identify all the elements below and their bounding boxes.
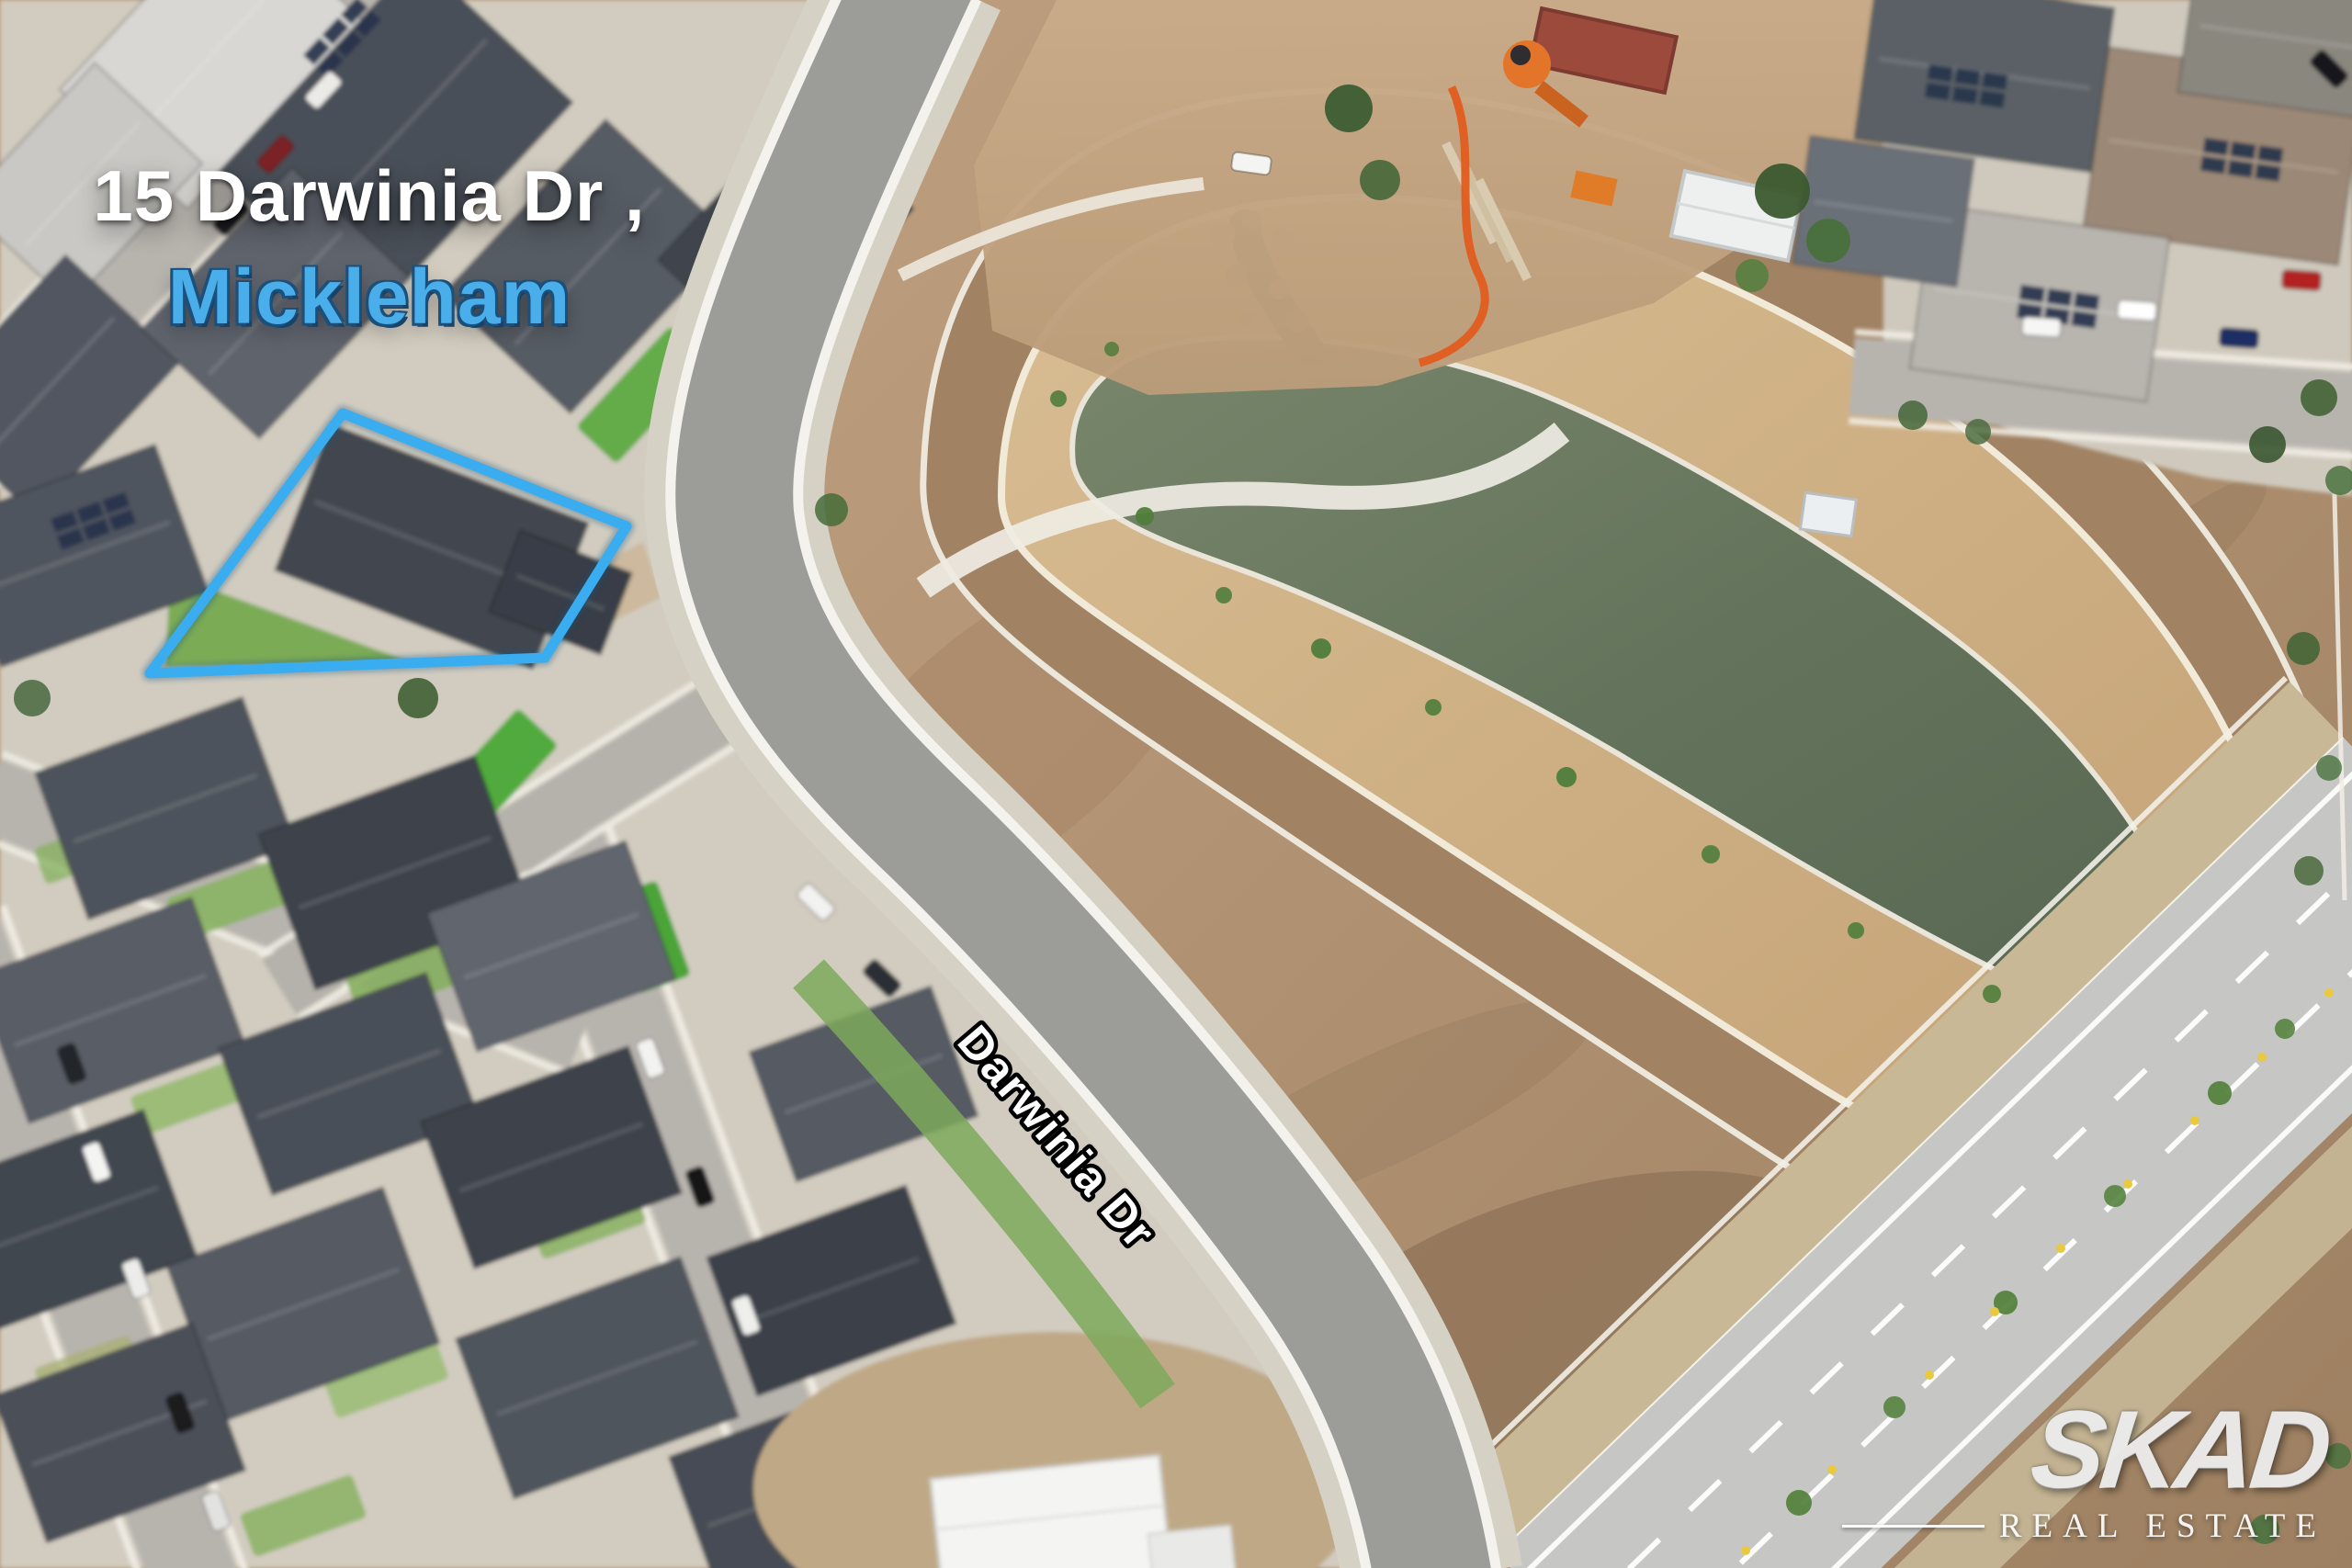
tree [2325,1443,2351,1469]
tree [1898,400,1928,430]
tree [1848,922,1864,939]
car [2281,270,2321,291]
tree [2301,379,2337,416]
tree [2275,1019,2295,1039]
tree [1806,219,1850,263]
tree [398,678,438,718]
tree [14,680,51,716]
tree [1556,767,1577,787]
car [2117,300,2156,321]
tree [1786,1490,1812,1516]
tree [1702,845,1720,863]
tree [1883,1396,1905,1418]
car [2219,328,2258,349]
marker-post [2056,1244,2065,1253]
marker-post [2190,1116,2199,1125]
tree [2250,1515,2279,1544]
aerial-photo: Darwinia Dr 15 Darwinia Dr , Mickleham S… [0,0,2352,1568]
tree [1216,587,1232,604]
tree [1104,342,1119,356]
marker-post [2324,988,2334,998]
site-crate [1800,492,1856,536]
tree [1983,985,2001,1003]
suburb-top-right [1792,0,2352,496]
tree [1736,259,1769,292]
tree [2104,1185,2126,1207]
tree [1360,160,1400,200]
tree [2249,426,2286,463]
aerial-scene: Darwinia Dr [0,0,2352,1568]
tree [815,493,848,526]
tree [1136,507,1154,525]
tree [1755,164,1810,219]
tree [1965,419,1991,445]
car [2021,317,2061,338]
marker-post [1990,1307,1999,1316]
tree [2294,856,2324,886]
tree [1311,638,1331,659]
tree [1050,390,1067,407]
house-roof [1792,136,1974,287]
marker-post [1827,1465,1837,1474]
marker-post [2123,1179,2132,1189]
marker-post [1741,1546,1750,1555]
tree [1425,699,1442,716]
tree [2316,755,2342,781]
tree [2208,1081,2232,1105]
tree [2287,632,2320,665]
marker-post [1925,1371,1934,1380]
tree [1325,85,1373,132]
marker-post [2257,1053,2267,1062]
